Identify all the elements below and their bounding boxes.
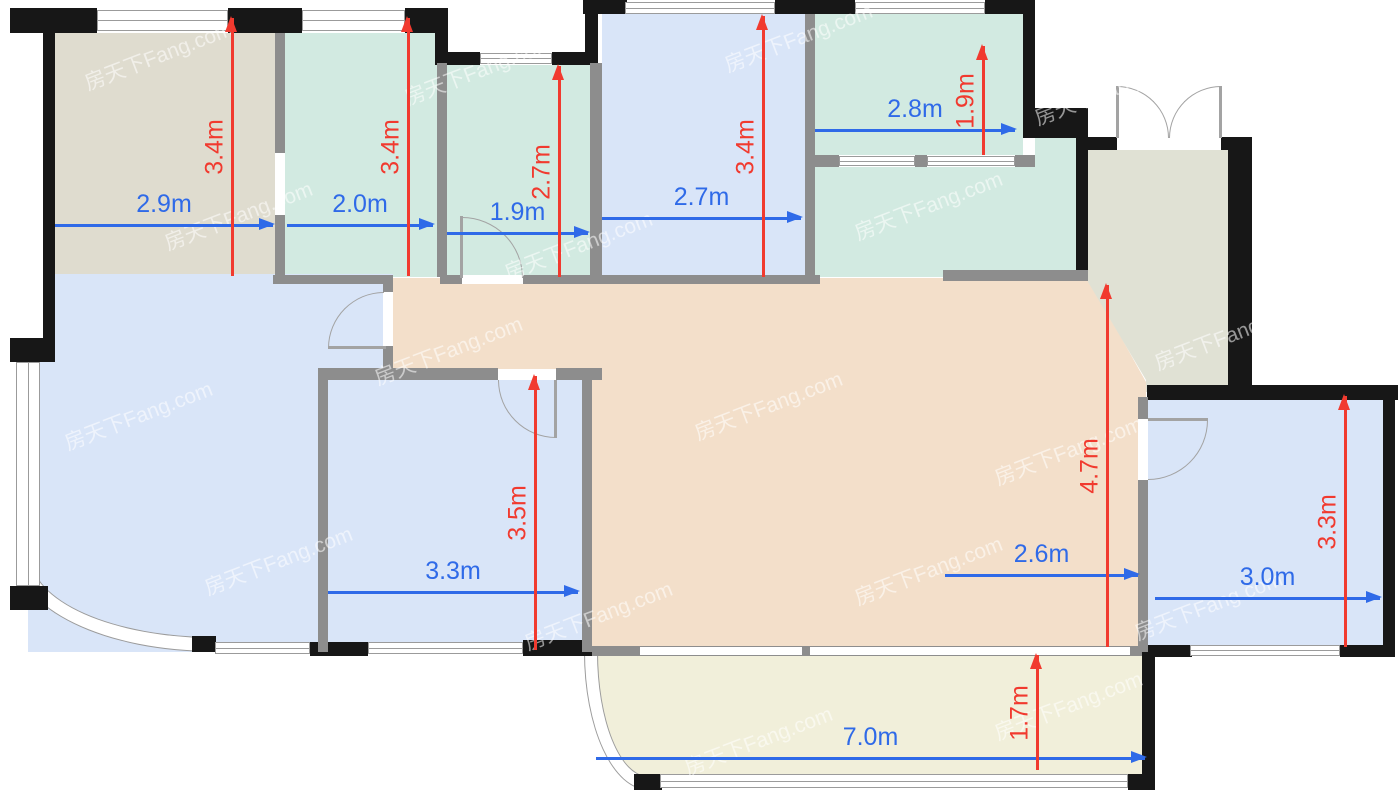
dim-line (558, 66, 561, 277)
dim-label: 2.7m (528, 144, 557, 200)
dim-label: 3.4m (201, 119, 230, 175)
wall-segment (634, 774, 662, 790)
wall-segment (1076, 138, 1088, 278)
arrowhead-up-icon (756, 14, 768, 30)
wall-segment (1340, 645, 1395, 657)
entry-door-swing-arc (1169, 86, 1221, 138)
dim-label: 2.0m (332, 190, 388, 219)
wall-segment (273, 275, 393, 284)
arrowhead-right-icon (574, 226, 590, 238)
arrowhead-right-icon (1124, 568, 1140, 580)
dim-label: 2.6m (1014, 540, 1070, 569)
wall-segment (318, 368, 498, 380)
wall-segment (583, 0, 627, 14)
dim-line (1106, 285, 1109, 647)
wall-segment (1023, 0, 1035, 110)
wall-segment (1023, 108, 1088, 138)
arrowhead-up-icon (401, 16, 413, 32)
dim-label: 3.4m (732, 119, 761, 175)
wall-segment (1147, 385, 1398, 400)
arrowhead-up-icon (225, 16, 237, 32)
arrowhead-up-icon (976, 44, 988, 60)
arrowhead-right-icon (419, 218, 435, 230)
dim-line (815, 129, 1015, 132)
dim-label: 3.0m (1240, 563, 1296, 592)
dim-line (762, 16, 765, 277)
wall-segment (523, 275, 820, 284)
dim-line (945, 574, 1138, 577)
arrowhead-up-icon (1030, 653, 1042, 669)
dim-label: 3.3m (1314, 494, 1343, 550)
wall-segment (10, 586, 48, 610)
sliding-door-opening (640, 647, 802, 655)
arrowhead-right-icon (1001, 123, 1017, 135)
arrowhead-right-icon (1131, 751, 1147, 763)
wall-segment (805, 14, 815, 277)
wall-segment (440, 275, 462, 284)
entry-door-swing-arc (1117, 86, 1169, 138)
wall-segment (43, 25, 55, 340)
window-band (855, 2, 985, 14)
dim-label: 2.8m (887, 95, 943, 124)
wall-segment (1138, 480, 1148, 652)
window-band (660, 774, 1128, 788)
wall-segment (1128, 774, 1155, 790)
arrowhead-up-icon (552, 64, 564, 80)
dim-label: 2.7m (674, 183, 730, 212)
window-band (480, 53, 552, 64)
wall-segment (590, 63, 602, 283)
wall-segment (775, 0, 855, 14)
dim-line (447, 232, 588, 235)
arrowhead-right-icon (564, 585, 580, 597)
room-top-2-fill (285, 33, 437, 277)
dim-line (596, 757, 1145, 760)
window-band (16, 362, 40, 586)
dim-line (231, 18, 234, 276)
wall-segment (1088, 137, 1117, 150)
wall-segment (275, 33, 285, 153)
watermark-text: 房天下Fang.com (320, 678, 477, 762)
wall-segment (1228, 137, 1252, 392)
dim-label: 3.3m (425, 557, 481, 586)
dim-line (982, 46, 985, 155)
window-band (368, 642, 523, 654)
dim-label: 1.7m (1006, 685, 1035, 741)
outside-patch (10, 274, 44, 340)
arrowhead-up-icon (1100, 283, 1112, 299)
arrowhead-right-icon (1366, 591, 1382, 603)
entry-door-opening (1117, 138, 1221, 150)
dim-label: 3.5m (504, 485, 533, 541)
arrowhead-right-icon (259, 218, 275, 230)
door-opening (383, 292, 393, 346)
dim-label: 2.9m (136, 190, 192, 219)
wall-segment (556, 368, 602, 380)
dim-label: 7.0m (843, 723, 899, 752)
pass-through-window (839, 156, 915, 166)
dim-line (287, 224, 433, 227)
door-opening (1138, 419, 1148, 480)
dim-label: 3.4m (377, 119, 406, 175)
arrowhead-right-icon (787, 211, 803, 223)
wall-segment (807, 155, 839, 167)
window-band (1190, 645, 1340, 656)
dim-line (55, 224, 273, 227)
room-top-left-fill (55, 33, 275, 278)
wall-segment (228, 8, 302, 33)
wall-segment (915, 155, 927, 167)
dim-line (534, 376, 537, 650)
dim-line (1344, 396, 1347, 647)
pass-through-window (927, 156, 1015, 166)
wall-segment (582, 378, 592, 652)
door-opening (275, 153, 285, 215)
window-band (625, 2, 775, 14)
wall-segment (275, 215, 285, 277)
wall-segment (943, 270, 1088, 281)
wall-segment (1138, 397, 1148, 419)
floor-plan: 房天下Fang.com 房天下Fang.com 房天下Fang.com 房天下F… (0, 0, 1400, 793)
arrowhead-up-icon (1338, 394, 1350, 410)
dim-label: 4.7m (1076, 438, 1105, 494)
open-area-notch-fill (1035, 138, 1076, 168)
wall-segment (10, 338, 55, 362)
window-band (97, 10, 228, 31)
wall-segment (318, 378, 328, 652)
dim-line (328, 591, 578, 594)
wall-segment (383, 275, 393, 292)
room-top-4-fill (602, 14, 805, 277)
window-band (302, 10, 405, 31)
sliding-door-opening (810, 647, 1130, 655)
balcony-fill (592, 652, 1142, 788)
dim-line (1036, 655, 1039, 770)
wall-segment (437, 63, 447, 277)
wall-segment (192, 636, 216, 652)
wall-segment (1015, 155, 1035, 167)
dim-line (407, 18, 410, 276)
arrowhead-up-icon (528, 374, 540, 390)
wall-segment (1142, 652, 1155, 790)
dim-label: 1.9m (952, 73, 981, 129)
dim-label: 1.9m (490, 198, 546, 227)
room-top-right-fill (815, 14, 1023, 155)
open-area-fill (815, 167, 1076, 277)
dim-line (602, 217, 801, 220)
wall-segment (1383, 397, 1395, 657)
window-band (215, 642, 310, 654)
